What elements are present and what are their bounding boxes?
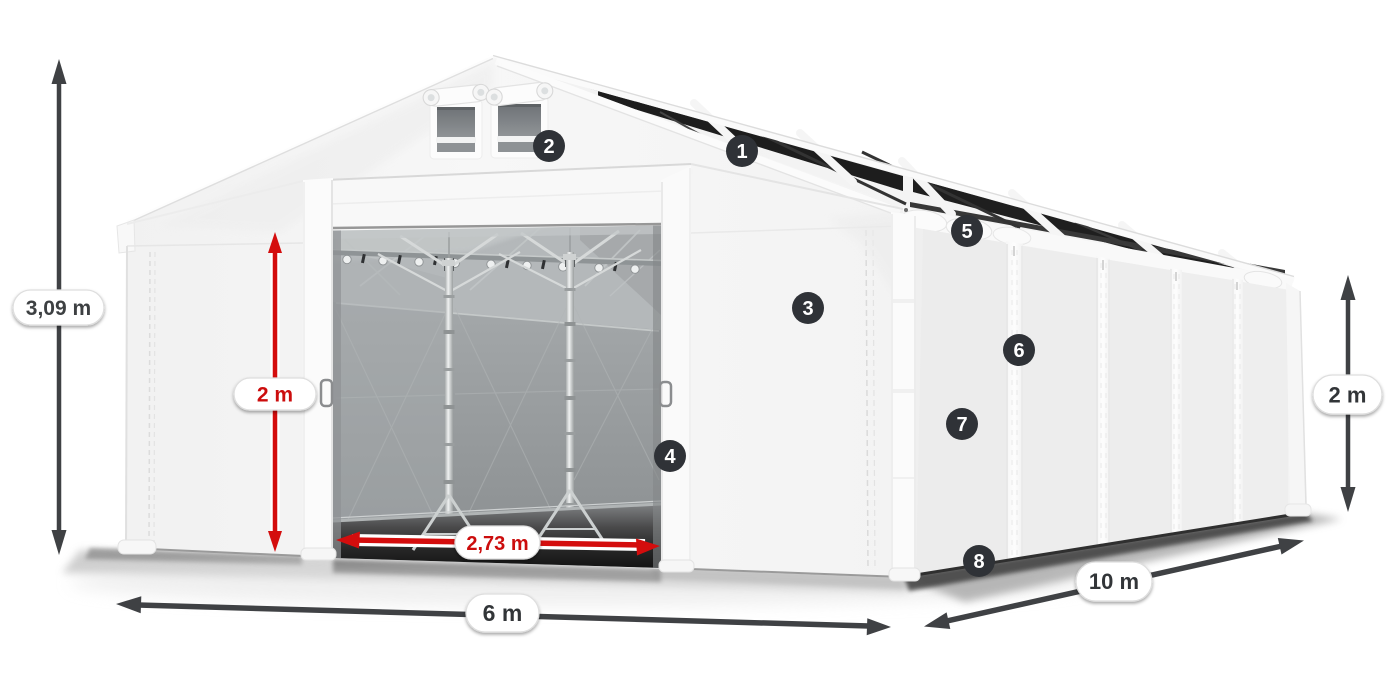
svg-text:2 m: 2 m xyxy=(257,384,293,407)
svg-text:3: 3 xyxy=(802,298,813,320)
svg-text:2,73 m: 2,73 m xyxy=(466,533,528,555)
svg-text:2: 2 xyxy=(543,136,554,158)
svg-text:10 m: 10 m xyxy=(1089,569,1139,594)
svg-text:8: 8 xyxy=(973,551,984,573)
svg-text:6: 6 xyxy=(1013,340,1024,362)
svg-text:1: 1 xyxy=(736,141,747,163)
svg-text:6 m: 6 m xyxy=(483,600,523,626)
svg-text:5: 5 xyxy=(961,221,972,243)
svg-text:3,09 m: 3,09 m xyxy=(26,297,91,320)
svg-text:2 m: 2 m xyxy=(1329,383,1367,408)
svg-text:4: 4 xyxy=(664,446,676,468)
svg-text:7: 7 xyxy=(956,414,967,436)
